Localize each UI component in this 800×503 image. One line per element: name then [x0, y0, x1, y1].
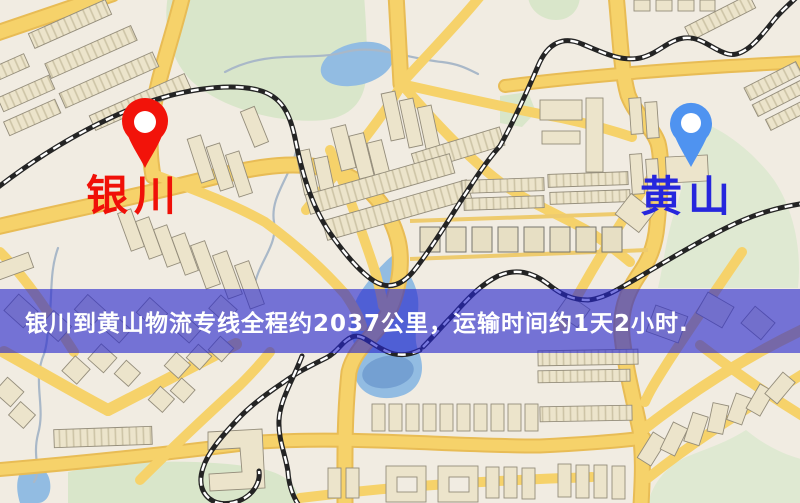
destination-label: 黄山 — [640, 176, 736, 218]
map-canvas[interactable]: 银川 黄山 银川到黄山物流专线全程约2037公里，运输时间约1天2小时. — [0, 0, 800, 503]
route-info-banner: 银川到黄山物流专线全程约2037公里，运输时间约1天2小时. — [0, 289, 800, 353]
origin-pin[interactable] — [122, 98, 168, 168]
map-artwork — [0, 0, 800, 503]
origin-label: 银川 — [86, 175, 182, 217]
route-info-text: 银川到黄山物流专线全程约2037公里，运输时间约1天2小时. — [25, 304, 689, 338]
